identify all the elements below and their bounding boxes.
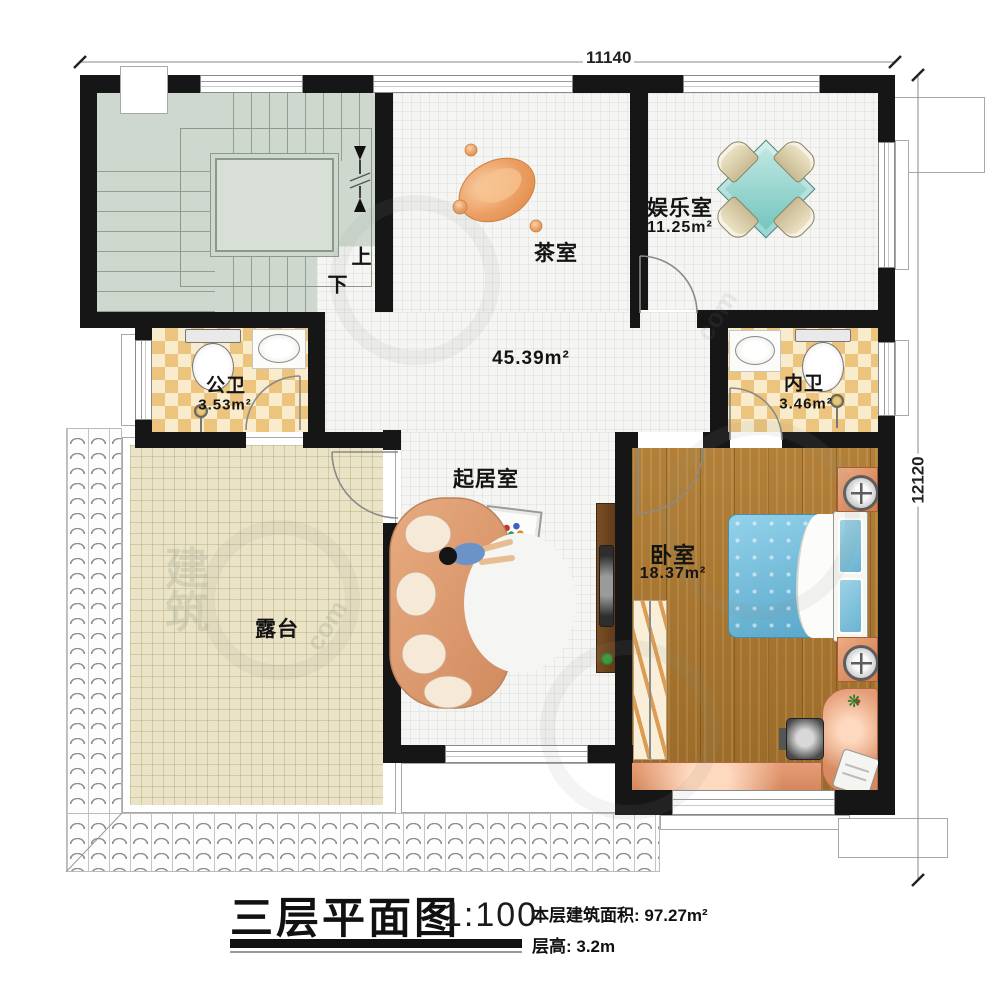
label-inner-bath-area: 3.46m² (779, 396, 833, 413)
label-entertainment: 娱乐室 (647, 192, 713, 222)
sill-below-bedroom (660, 815, 850, 830)
sill-right-innerbath (895, 340, 909, 416)
sink-basin-public (258, 334, 300, 363)
window-tea-top (373, 75, 573, 93)
plan-scale: 1:100 (443, 896, 538, 935)
sink-basin-inner (735, 336, 775, 365)
coffee-table (475, 505, 542, 607)
window-publicbath-left (135, 340, 152, 420)
floor-area-text: 本层建筑面积: 97.27m² (532, 901, 708, 926)
dimension-right: 12120 (909, 453, 929, 506)
watermark-text-1: 建筑 (150, 545, 214, 633)
label-entertainment-area: 11.25m² (647, 219, 713, 237)
wall-terrace-right-1 (383, 430, 401, 450)
title-underline (230, 939, 522, 948)
nightstand-bottom (837, 637, 878, 682)
wall-right-1 (878, 75, 895, 142)
toilet-tank-public (185, 329, 241, 343)
watermark-ring-1 (330, 195, 500, 365)
pillow-2 (838, 578, 863, 634)
cup-1 (497, 561, 508, 572)
lamp-stem-inner (836, 408, 838, 428)
wall-living-bottom-1 (383, 745, 445, 763)
watermark-ring-4 (540, 640, 720, 820)
label-stairs-down: 下 (328, 269, 349, 298)
window-stairwell-top (200, 75, 303, 93)
window-entertainment-right (878, 142, 895, 268)
flower-decor (494, 516, 531, 550)
label-hall-area: 45.39m² (492, 348, 570, 370)
floor-height-text: 层高: 3.2m (532, 932, 615, 957)
steps-bottom-right (838, 818, 948, 858)
wall-terrace-right-2 (383, 523, 401, 745)
bedside-lamp-bottom (843, 645, 879, 681)
monitor-stand (779, 728, 786, 750)
roof-eave-bottom (66, 813, 660, 872)
wall-stair-bottom (80, 312, 325, 328)
wall-right-3 (878, 416, 895, 815)
wall-ent-bottom-1 (630, 310, 640, 328)
roof-eave-left (66, 428, 122, 872)
cup-2 (513, 567, 524, 578)
sill-right-entertainment (895, 140, 909, 270)
label-public-bath: 公卫 (206, 371, 246, 398)
wall-top-3 (573, 75, 683, 93)
label-stairs-up: 上 (352, 241, 373, 270)
wall-right-2 (878, 268, 895, 342)
computer-monitor (786, 718, 824, 760)
label-tea-room: 茶室 (534, 237, 578, 267)
desk-plant-icon: ❋ (847, 692, 861, 712)
label-bedroom-area: 18.37m² (640, 565, 707, 583)
label-terrace: 露台 (255, 613, 299, 643)
tv (599, 545, 614, 627)
wall-tea-ent-divider (630, 93, 648, 310)
wall-top-2 (303, 75, 373, 93)
label-living-room: 起居室 (453, 463, 519, 493)
label-public-bath-area: 3.53m² (198, 397, 252, 414)
dimension-top: 11140 (583, 48, 634, 68)
watermark-ring-2 (660, 420, 860, 620)
toilet-tank-inner (795, 329, 851, 342)
title-underline-thin (230, 951, 522, 953)
window-innerbath-right (878, 342, 895, 416)
window-bedroom-bottom (672, 790, 835, 815)
wall-publicbath-left-1 (135, 328, 152, 340)
wall-publicbath-right (308, 312, 325, 432)
label-inner-bath: 内卫 (784, 369, 824, 396)
stair-landing (215, 158, 334, 252)
wall-bedroom-bottom-2 (835, 790, 895, 815)
floor-plan-canvas: ❋ (0, 0, 1000, 990)
chimney-box (120, 66, 168, 114)
wall-left (80, 75, 97, 312)
sill-left-publicbath (121, 334, 136, 426)
window-entertainment-top (683, 75, 820, 93)
wall-publicbath-bottom-1 (135, 432, 246, 448)
plan-title: 三层平面图 (230, 884, 460, 946)
